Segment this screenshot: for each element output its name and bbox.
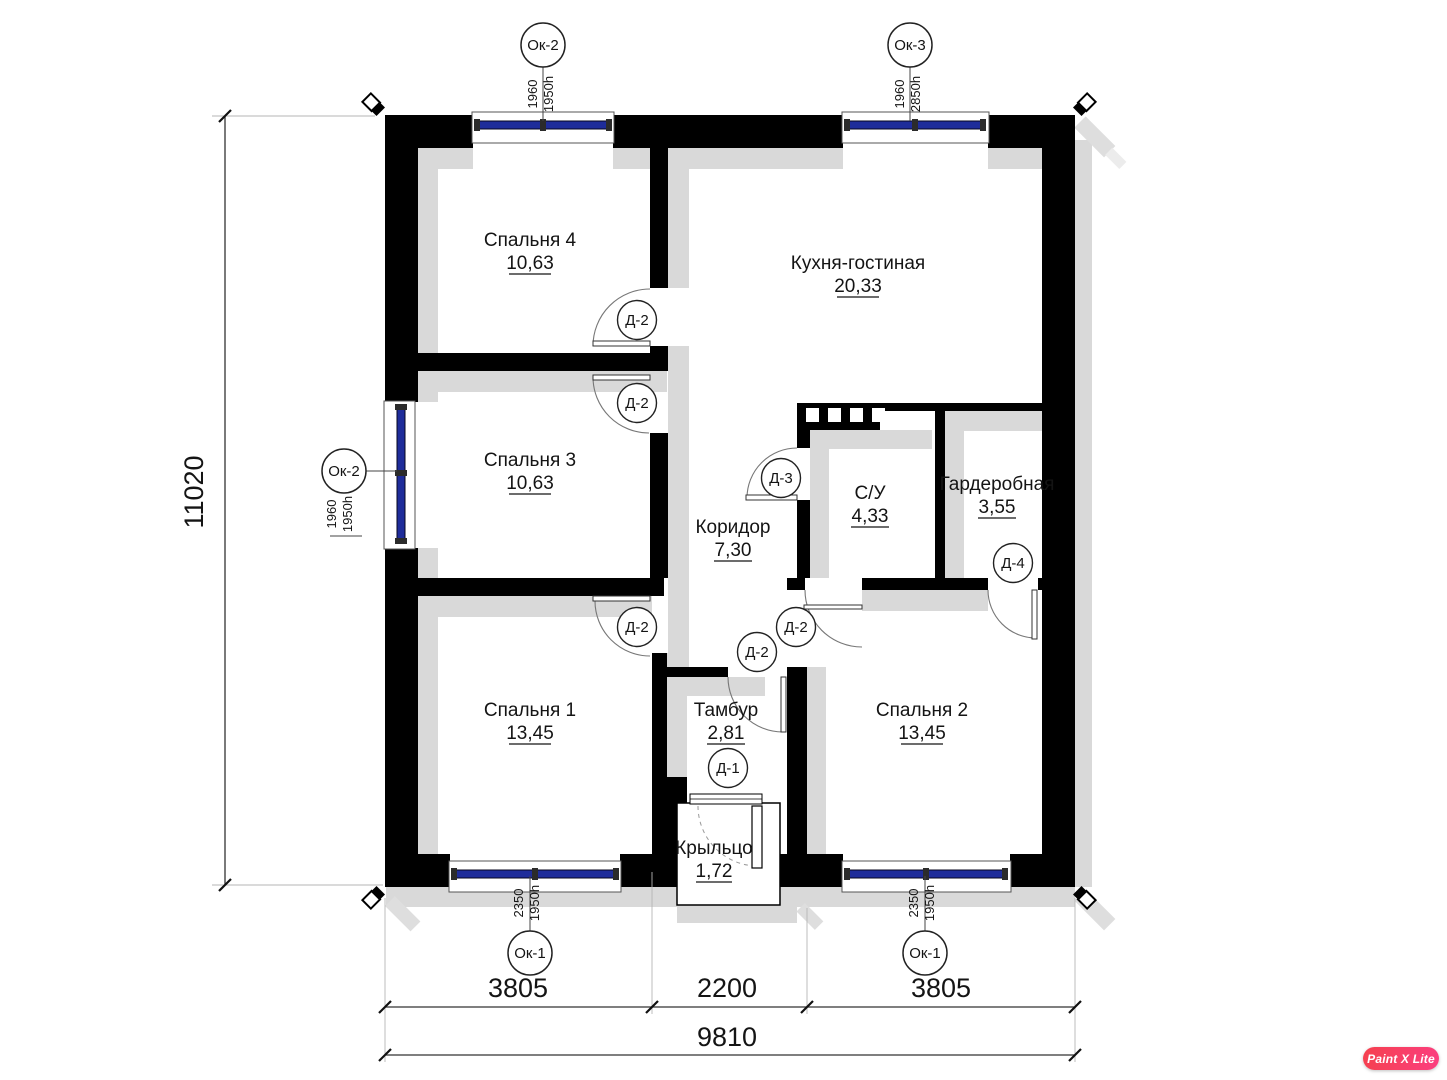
wall-bathroom-left-upper (797, 430, 810, 448)
door-leaf-bedroom4 (593, 341, 650, 346)
room-label-bedroom4: Спальня 4 10,63 (484, 230, 577, 274)
window-height-label: 1950h (527, 885, 542, 921)
window-tag-label: Ок-2 (328, 463, 360, 480)
wall-corridor-south-a (787, 578, 805, 590)
wall-bathroom-wardrobe (935, 411, 945, 590)
room-area: 4,33 (852, 506, 889, 527)
room-name: Крыльцо (675, 838, 753, 859)
room-label-kitchen-living: Кухня-гостиная 20,33 (791, 253, 925, 297)
door-tag-label: Д-2 (625, 395, 649, 412)
room-label-bedroom1: Спальня 1 13,45 (484, 700, 576, 744)
room-name: Спальня 4 (484, 230, 577, 251)
wall-bedroom4-bedroom3 (417, 353, 667, 371)
wall-left-upper-segment (385, 115, 418, 402)
room-area: 10,63 (506, 473, 554, 494)
window-width-label: 1960 (324, 500, 339, 529)
wall-bottom-segment-1 (385, 854, 450, 887)
room-label-bedroom3: Спальня 3 10,63 (484, 450, 576, 494)
door-tag-d2-tambour: Д-2 (738, 633, 777, 672)
room-label-bedroom2: Спальня 2 13,45 (876, 700, 968, 744)
room-label-bathroom: С/У 4,33 (851, 483, 889, 527)
wall-right (1042, 115, 1075, 887)
window-height-label: 1950h (340, 496, 355, 532)
windows (384, 112, 1011, 892)
room-name: Спальня 2 (876, 700, 968, 721)
room-area: 20,33 (834, 276, 882, 297)
door-tag-label: Д-2 (745, 644, 769, 661)
wall-corridor-south-b (862, 578, 988, 590)
door-tag-label: Д-1 (716, 760, 740, 777)
wall-kitchen-south-thin (880, 403, 1042, 411)
window-tag-label: Ок-1 (514, 945, 546, 962)
door-tag-d2-bedroom1: Д-2 (618, 608, 657, 647)
window-left (384, 401, 415, 549)
door-tag-label: Д-2 (784, 619, 808, 636)
door-leaf-bedroom2 (804, 605, 862, 609)
door-tag-d4-wardrobe: Д-4 (994, 544, 1033, 583)
door-tag-label: Д-2 (625, 619, 649, 636)
window-tag-ok3-top: Ок-3 1960 2850h (888, 23, 932, 121)
room-name: Гардеробная (940, 474, 1055, 495)
floorplan-page: 11020 3805 2200 3805 9810 Ок-2 1960 1950… (0, 0, 1447, 1080)
corner-marker-top-left (362, 93, 385, 116)
window-height-label: 2850h (908, 76, 923, 112)
window-top-right (842, 112, 989, 143)
room-name: Коридор (695, 517, 770, 538)
window-tag-label: Ок-3 (894, 37, 926, 54)
room-name: Спальня 1 (484, 700, 576, 721)
door-leaf-wardrobe (1032, 590, 1037, 639)
floorplan-drawing: 11020 3805 2200 3805 9810 Ок-2 1960 1950… (0, 0, 1447, 1080)
dim-width-total: 9810 (697, 1022, 757, 1052)
door-tag-d2-bedroom2: Д-2 (777, 608, 816, 647)
door-tag-d2-bedroom3: Д-2 (618, 384, 657, 423)
door-tag-d2-bedroom4: Д-2 (618, 301, 657, 340)
window-tag-label: Ок-2 (527, 37, 559, 54)
door-tag-label: Д-2 (625, 312, 649, 329)
room-area: 2,81 (708, 723, 745, 744)
dim-width-segment-1: 3805 (488, 973, 548, 1003)
room-area: 13,45 (506, 723, 554, 744)
wall-bedroom3-bedroom1 (417, 578, 664, 596)
paintx-watermark-badge: Paint X Lite (1363, 1047, 1439, 1070)
wall-tambour-top (663, 667, 728, 677)
room-name: Тамбур (694, 700, 759, 721)
room-label-corridor: Коридор 7,30 (695, 517, 770, 561)
wall-bottom-segment-4 (1010, 854, 1075, 887)
room-area: 1,72 (696, 861, 733, 882)
door-tag-label: Д-3 (769, 470, 793, 487)
dim-height-total: 11020 (179, 455, 209, 528)
room-name: Кухня-гостиная (791, 253, 925, 274)
room-area: 10,63 (506, 253, 554, 274)
corner-marker-top-right (1073, 93, 1096, 116)
room-area: 7,30 (715, 540, 752, 561)
room-area: 13,45 (898, 723, 946, 744)
wall-top-middle-segment (613, 115, 843, 148)
door-tag-label: Д-4 (1001, 555, 1025, 572)
door-leaf-tambour (781, 677, 786, 732)
door-leaf-bedroom1 (593, 596, 650, 601)
room-name: Спальня 3 (484, 450, 576, 471)
entrance-door-leaf (752, 806, 762, 868)
room-name: С/У (854, 483, 886, 504)
door-tag-d3-bathroom: Д-3 (762, 459, 801, 498)
window-tag-ok2-top: Ок-2 1960 1950h (521, 23, 565, 121)
window-height-label: 1950h (922, 885, 937, 921)
room-area: 3,55 (979, 497, 1016, 518)
dim-width-segment-3: 3805 (911, 973, 971, 1003)
window-width-label: 1960 (525, 80, 540, 109)
window-width-label: 2350 (511, 889, 526, 918)
wall-bedroom3-corridor (650, 433, 668, 578)
wall-corridor-south-c (1038, 578, 1043, 590)
door-arc-wardrobe (988, 590, 1036, 638)
window-height-label: 1950h (541, 76, 556, 112)
window-width-label: 1960 (892, 80, 907, 109)
door-tag-d1-entrance: Д-1 (709, 749, 748, 788)
wall-bedroom4-kitchen (650, 148, 668, 288)
wall-bathroom-left-lower (797, 500, 810, 578)
dim-width-segment-2: 2200 (697, 973, 757, 1003)
room-label-tambour: Тамбур 2,81 (694, 700, 759, 744)
door-leaf-bedroom3 (593, 375, 650, 380)
window-width-label: 2350 (906, 889, 921, 918)
wall-left-lower-segment (385, 548, 418, 887)
corner-marker-bottom-left (362, 886, 385, 909)
room-labels: Спальня 4 10,63 Кухня-гостиная 20,33 Спа… (484, 230, 1055, 882)
window-tag-label: Ок-1 (909, 945, 941, 962)
wall-tambour-right (787, 667, 807, 854)
